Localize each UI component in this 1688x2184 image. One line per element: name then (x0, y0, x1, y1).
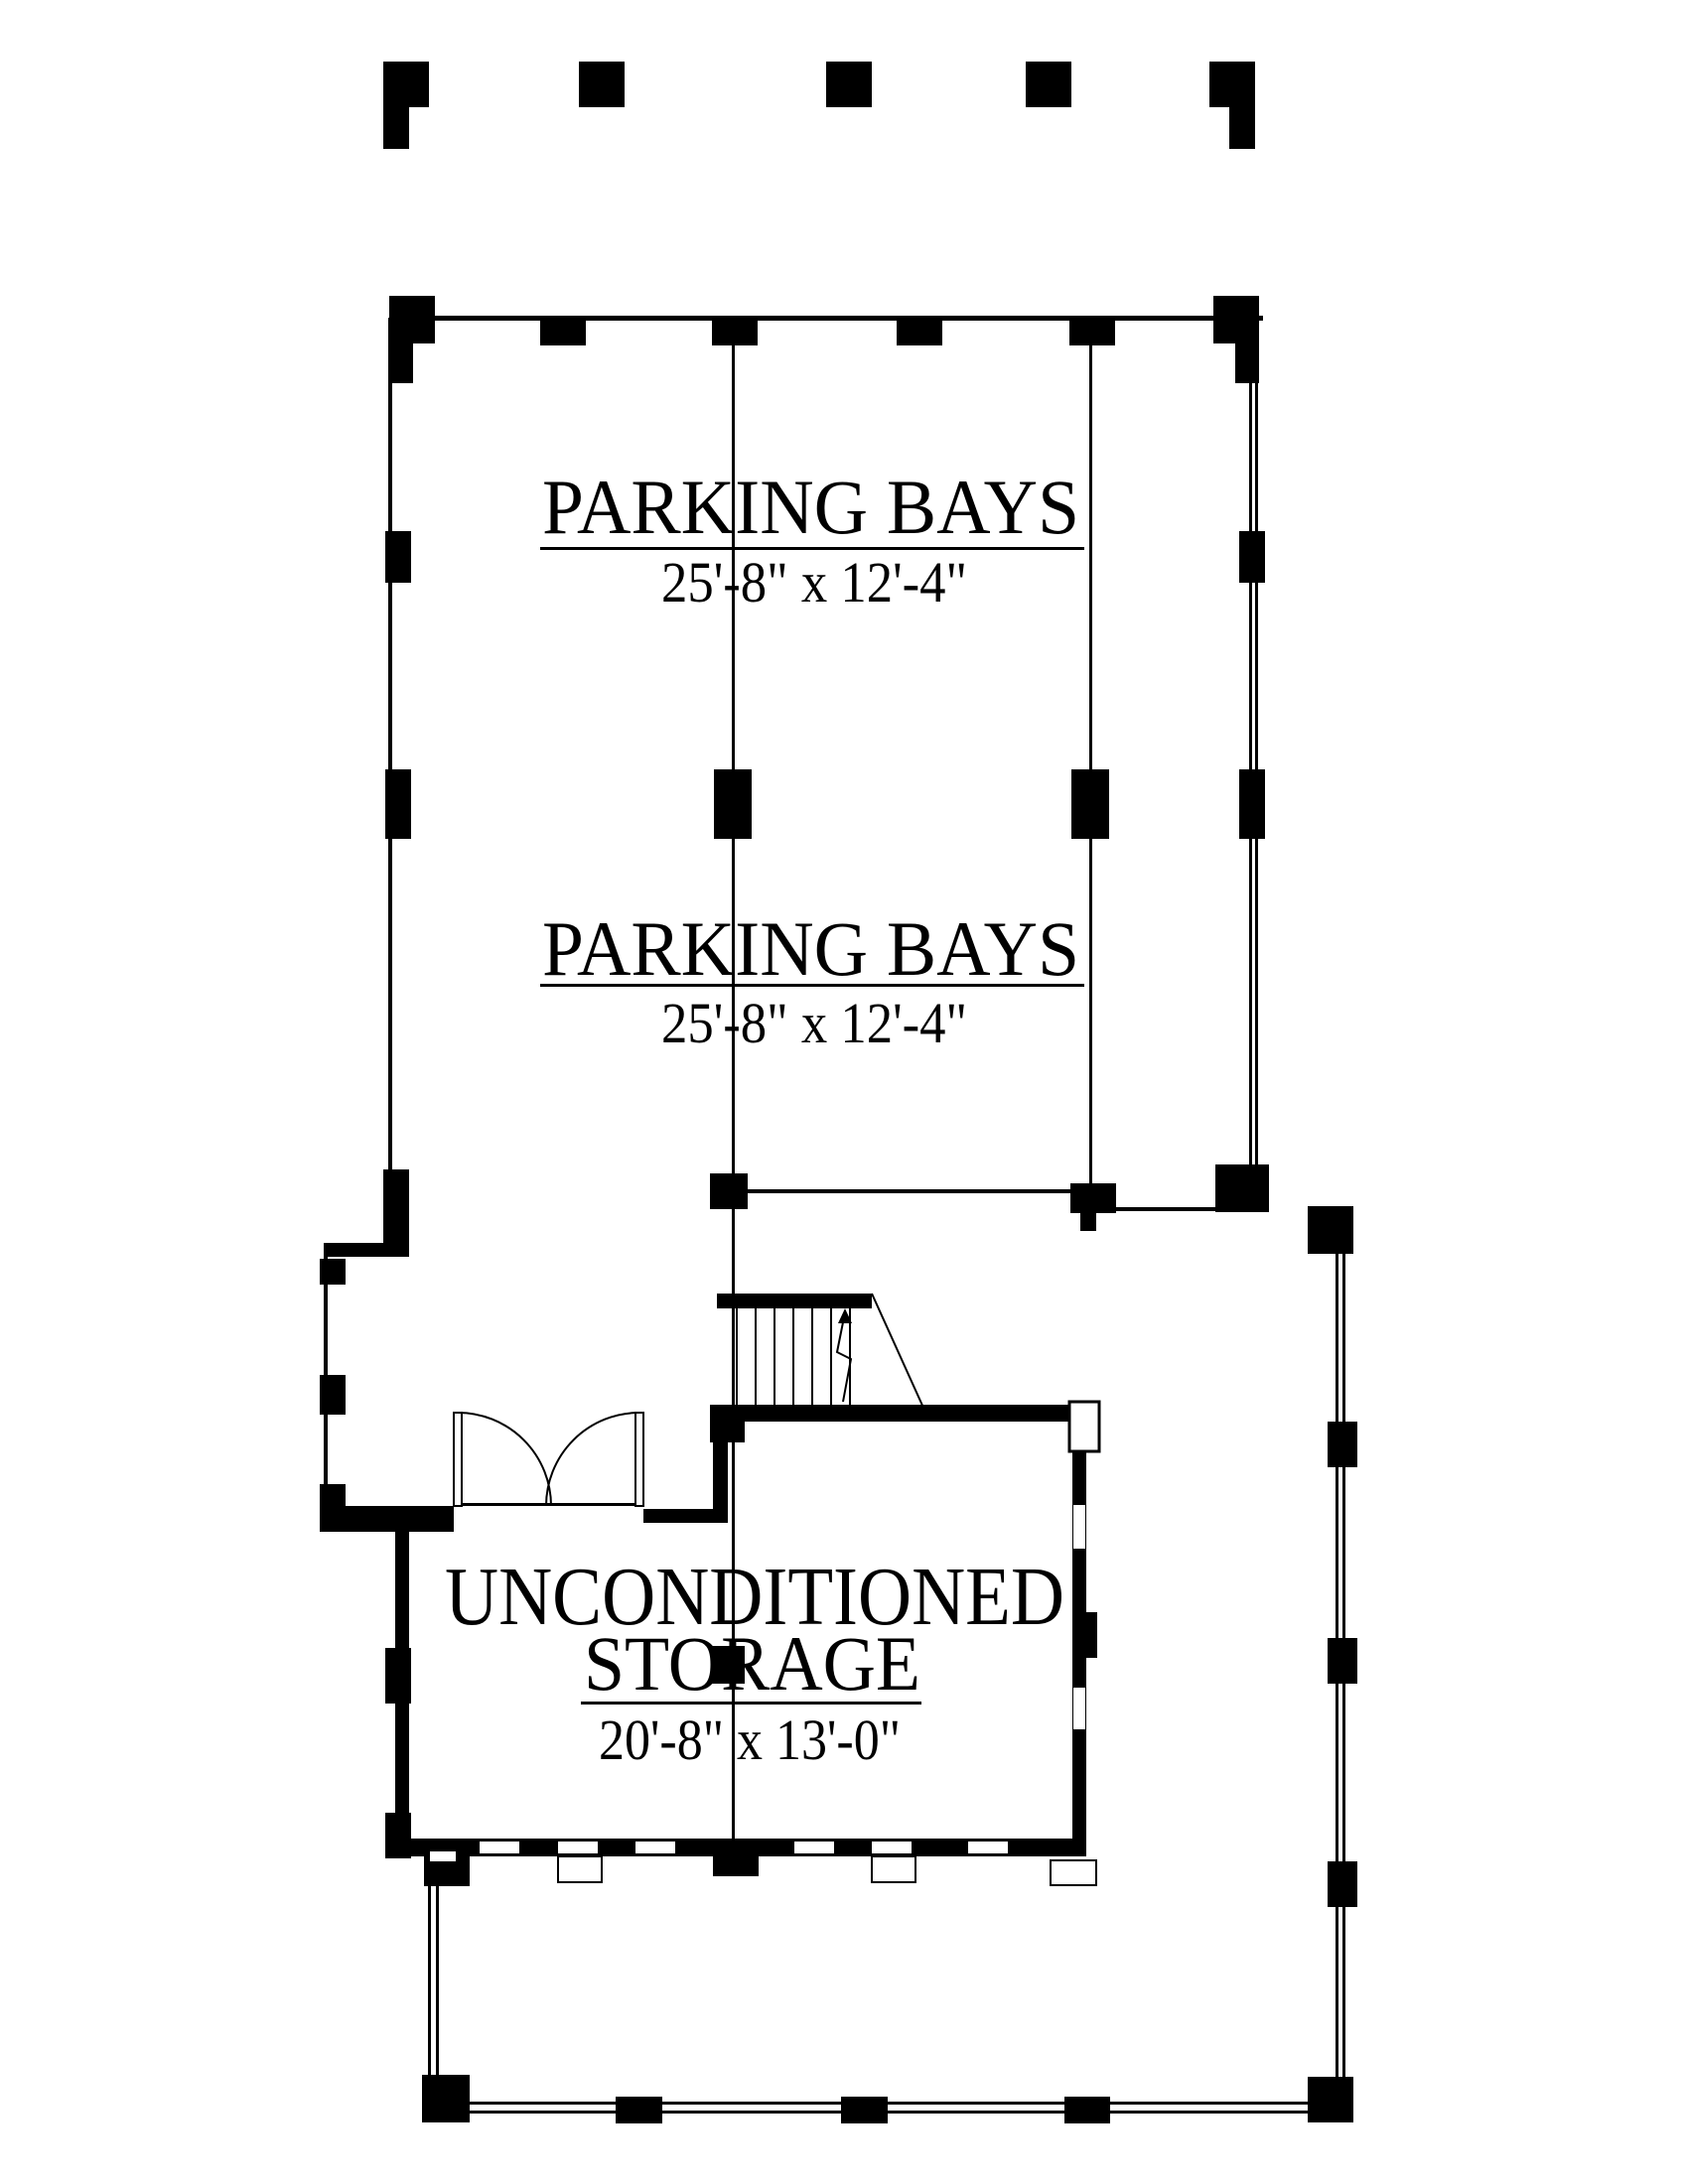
wall-column (540, 320, 586, 345)
wall-top (389, 316, 1263, 321)
porch-post (1328, 1861, 1357, 1907)
door-leaf-right (635, 1413, 643, 1506)
wall-corner-block (320, 1484, 346, 1508)
wall-pilaster (1239, 531, 1265, 583)
wall-end-column (383, 1169, 409, 1245)
room-dimensions: 25'-8" x 12'-4" (661, 991, 967, 1055)
vent-slot (558, 1842, 598, 1853)
vent-slot (872, 1842, 912, 1853)
porch-edge-left-line (428, 1884, 431, 2077)
wall-opening (1073, 1505, 1085, 1549)
step-out-wall (324, 1243, 409, 1257)
wall-pilaster (385, 1648, 411, 1704)
post-base (558, 1856, 602, 1882)
wall-pilaster (1239, 769, 1265, 839)
room-title-line2: STORAGE (584, 1620, 920, 1706)
wall-pilaster (385, 531, 411, 583)
interior-column (710, 1173, 748, 1209)
door-threshold (454, 1503, 643, 1506)
label-underline (540, 984, 1084, 987)
vent-slot (794, 1842, 834, 1853)
window-opening (1069, 1402, 1099, 1451)
vent-slot (635, 1842, 675, 1853)
wall-post (1080, 1612, 1097, 1658)
wall-column (713, 1839, 759, 1876)
room-dimensions: 20'-8" x 13'-0" (599, 1707, 901, 1772)
stair-landing-edge (717, 1294, 872, 1308)
column-step (1080, 1213, 1096, 1231)
porch-post-corner (1308, 2077, 1353, 2122)
wall-segment (320, 1506, 454, 1532)
porch-post (1328, 1422, 1357, 1467)
corner-column-bottom-right (1215, 1164, 1269, 1212)
wall-right-outer-line (1255, 318, 1258, 1191)
vent-slot (480, 1842, 519, 1853)
porch-post (1328, 1638, 1357, 1684)
room-dimensions: 25'-8" x 12'-4" (661, 550, 967, 614)
room-title: PARKING BAYS (542, 464, 1079, 550)
edge-line (748, 1189, 1070, 1193)
interior-column (1071, 769, 1109, 839)
bay-divider-line-right (1089, 320, 1092, 1189)
edge-line (1116, 1207, 1215, 1211)
wall-column (897, 320, 942, 345)
porch-post (841, 2097, 888, 2123)
porch-post (579, 62, 625, 107)
post-base (1051, 1860, 1096, 1885)
label-underline (581, 1702, 921, 1705)
wall-pilaster (320, 1259, 346, 1285)
stair-bottom-wall (713, 1405, 1072, 1422)
corner-post-notch (430, 1851, 456, 1861)
interior-column (714, 769, 752, 839)
porch-post-corner (1308, 1206, 1353, 1254)
porch-post (616, 2097, 662, 2123)
floor-plan-canvas: PARKING BAYS 25'-8" x 12'-4" PARKING BAY… (0, 0, 1688, 2184)
porch-post (1026, 62, 1071, 107)
porch-post (1064, 2097, 1110, 2123)
stair-side-wall (713, 1405, 728, 1522)
vent-slot (968, 1842, 1008, 1853)
porch-post (826, 62, 872, 107)
left-edge-line (324, 1257, 328, 1486)
porch-post-corner (422, 2075, 470, 2122)
post-base (872, 1856, 915, 1882)
wall-pilaster (385, 769, 411, 839)
wall-opening (1073, 1688, 1085, 1729)
wall-pilaster (320, 1375, 346, 1415)
room-title: PARKING BAYS (542, 905, 1079, 992)
wall-right-inner-line (1249, 318, 1252, 1191)
interior-column (1070, 1183, 1116, 1213)
porch-edge-left-line (436, 1884, 439, 2077)
door-leaf-left (454, 1413, 462, 1506)
